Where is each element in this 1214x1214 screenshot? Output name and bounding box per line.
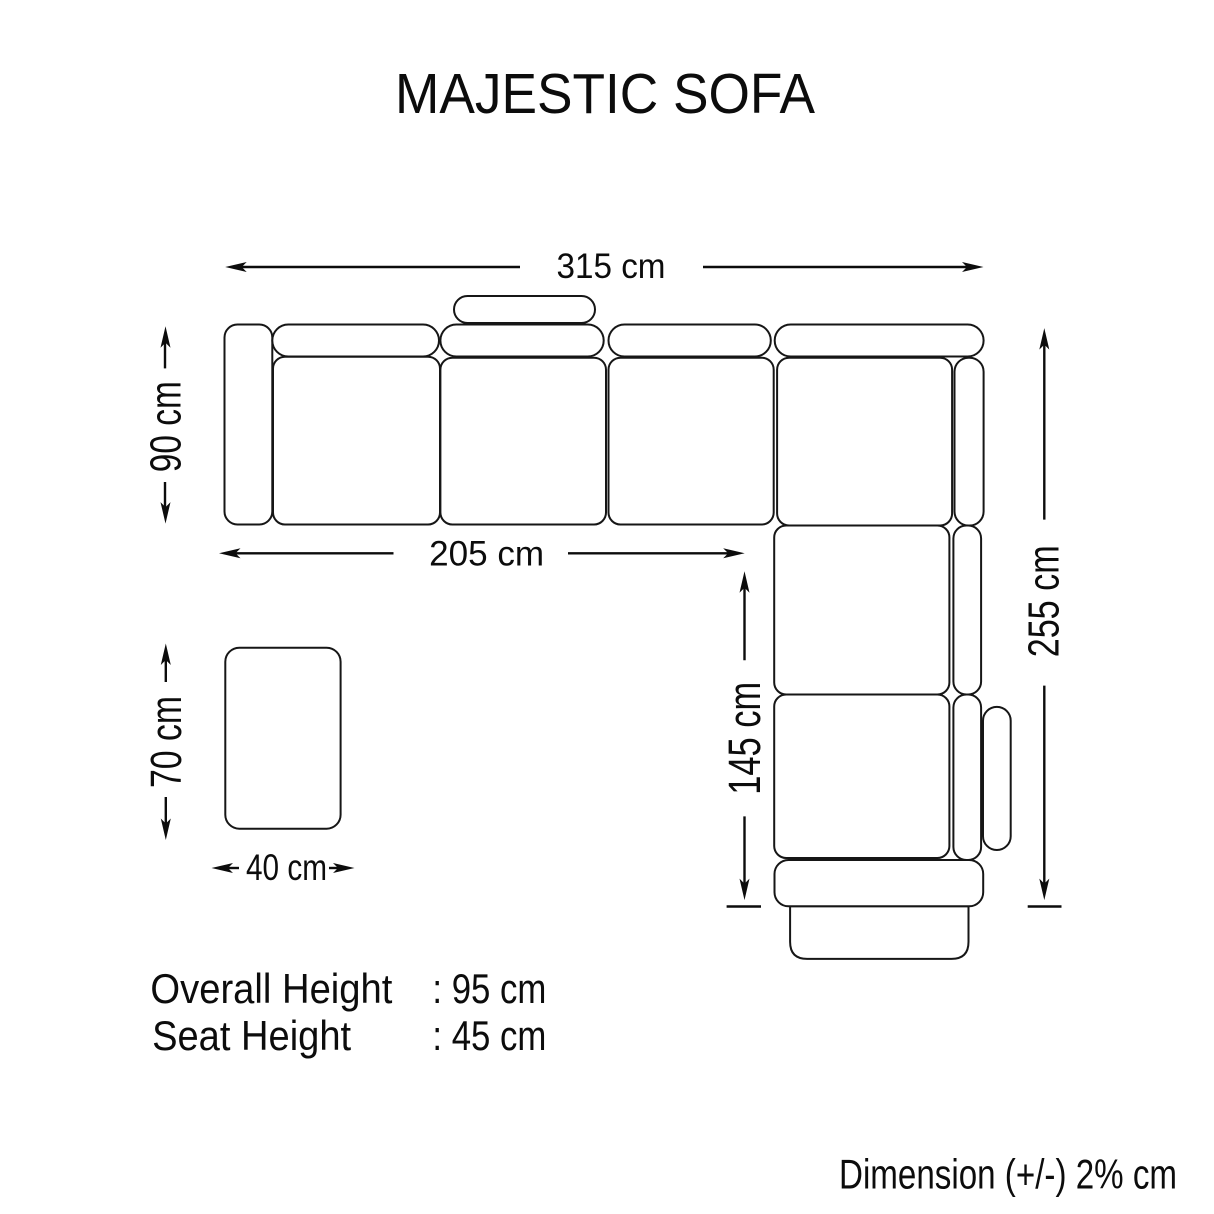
svg-text:Overall Height: Overall Height <box>150 965 392 1012</box>
svg-text:: 95 cm: : 95 cm <box>432 965 546 1012</box>
svg-text:205 cm: 205 cm <box>429 534 544 573</box>
svg-text:Dimension (+/-) 2% cm: Dimension (+/-) 2% cm <box>839 1151 1177 1198</box>
svg-text:: 45 cm: : 45 cm <box>432 1012 546 1059</box>
svg-text:90 cm: 90 cm <box>142 381 191 472</box>
svg-text:145 cm: 145 cm <box>719 682 770 795</box>
svg-text:255 cm: 255 cm <box>1020 545 1069 657</box>
svg-text:70 cm: 70 cm <box>142 696 191 788</box>
svg-text:Seat Height: Seat Height <box>152 1012 351 1059</box>
svg-text:40 cm: 40 cm <box>246 847 327 888</box>
svg-text:315 cm: 315 cm <box>557 247 666 286</box>
svg-text:MAJESTIC SOFA: MAJESTIC SOFA <box>395 62 815 126</box>
